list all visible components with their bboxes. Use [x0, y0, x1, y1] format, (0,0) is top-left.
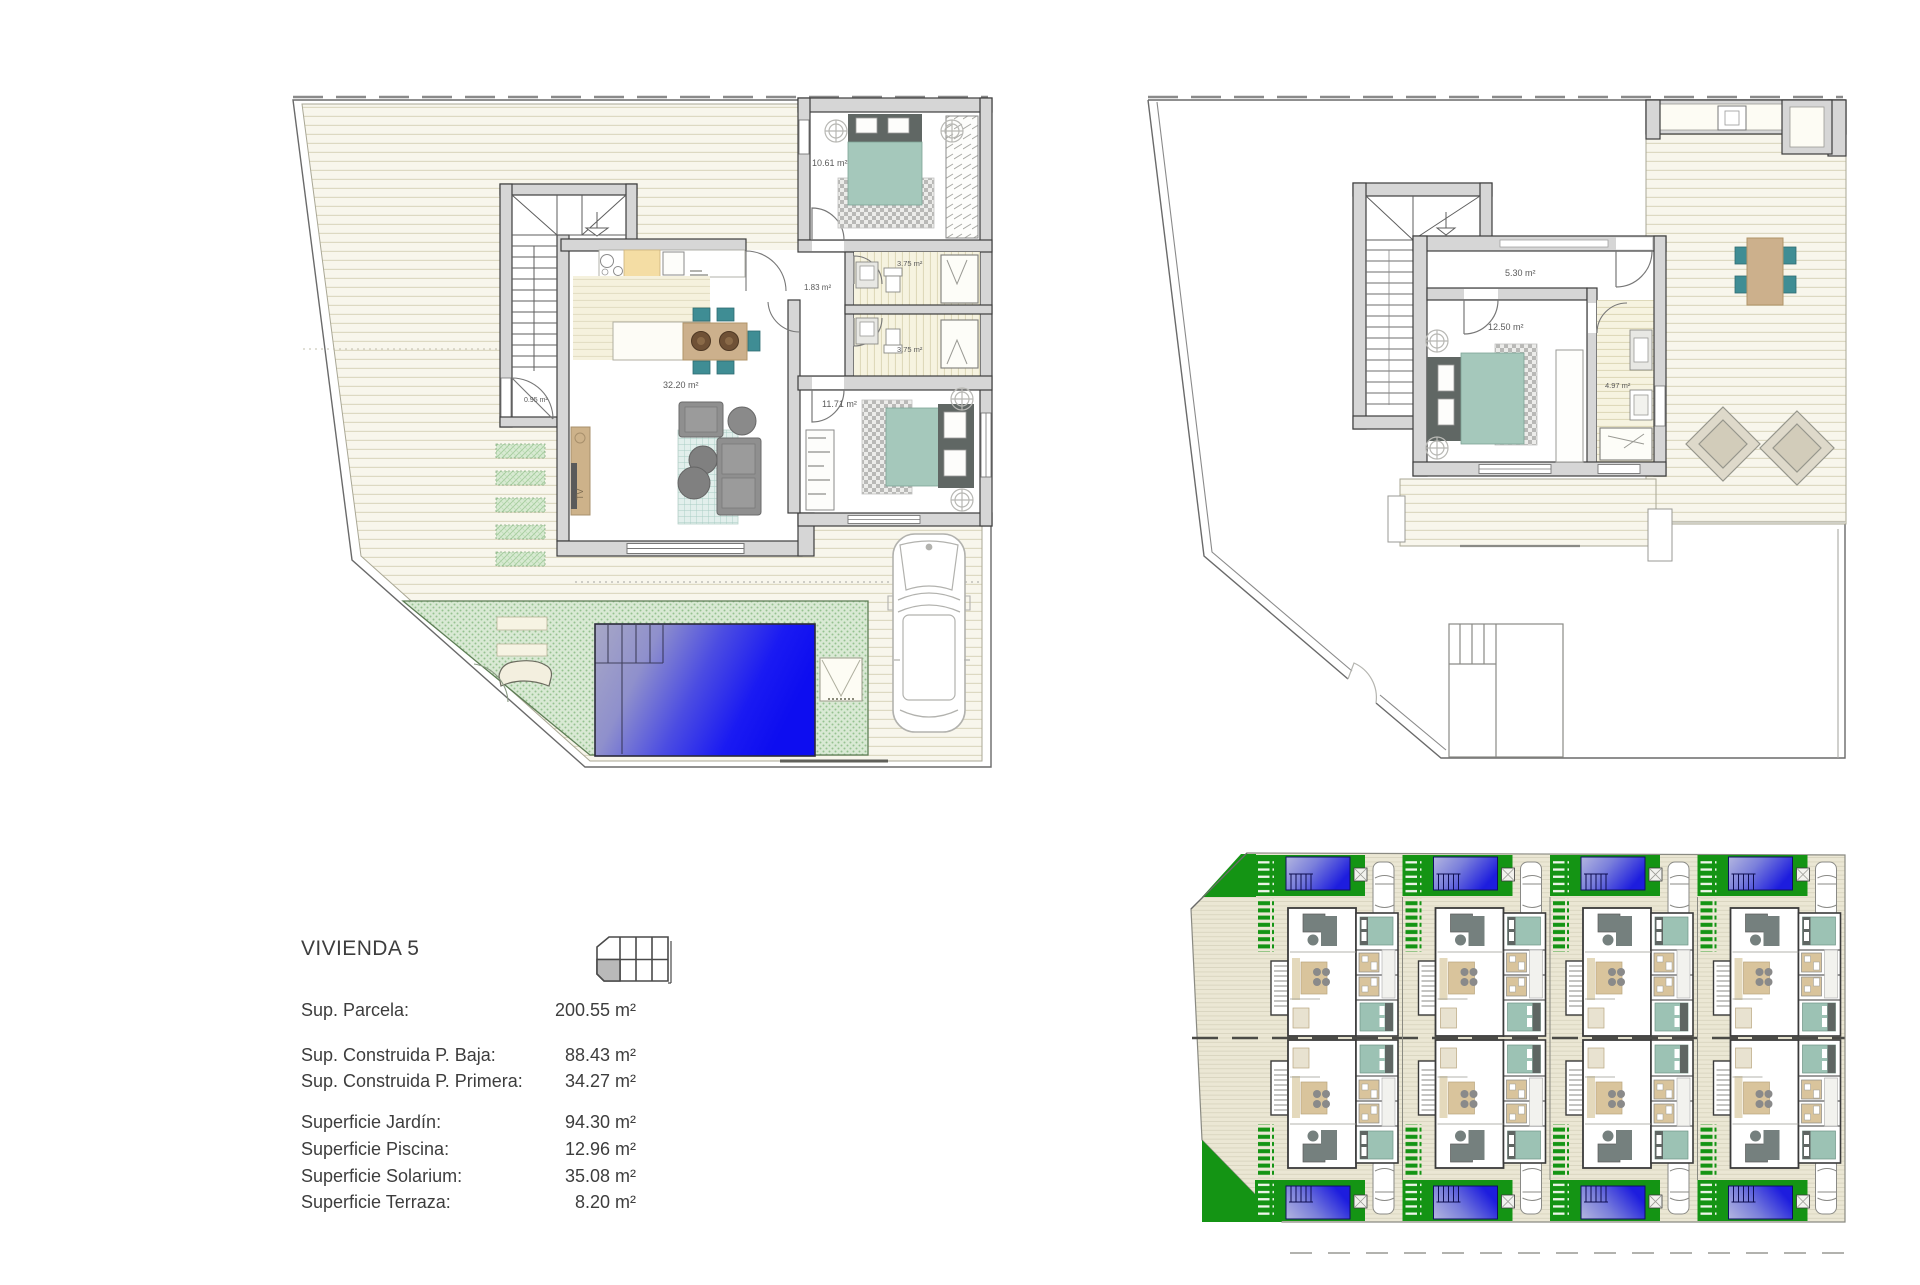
svg-text:Superficie Piscina:: Superficie Piscina: [301, 1139, 449, 1159]
svg-text:Superficie Solarium:: Superficie Solarium: [301, 1166, 462, 1186]
svg-text:32.20 m²: 32.20 m² [663, 380, 699, 390]
svg-text:200.55 m²: 200.55 m² [555, 1000, 636, 1020]
svg-text:12.96 m²: 12.96 m² [565, 1139, 636, 1159]
svg-text:Sup. Parcela:: Sup. Parcela: [301, 1000, 409, 1020]
svg-text:1.83 m²: 1.83 m² [804, 283, 831, 292]
svg-text:34.27 m²: 34.27 m² [565, 1071, 636, 1091]
svg-text:10.61 m²: 10.61 m² [812, 158, 848, 168]
svg-text:94.30 m²: 94.30 m² [565, 1112, 636, 1132]
svg-text:0.95 m²: 0.95 m² [524, 397, 548, 404]
svg-text:12.50 m²: 12.50 m² [1488, 322, 1524, 332]
svg-text:8.20 m²: 8.20 m² [575, 1192, 636, 1212]
svg-text:88.43 m²: 88.43 m² [565, 1045, 636, 1065]
svg-text:TV: TV [575, 488, 585, 500]
svg-text:5.30 m²: 5.30 m² [1505, 268, 1536, 278]
svg-text:35.08 m²: 35.08 m² [565, 1166, 636, 1186]
svg-text:Superficie Terraza:: Superficie Terraza: [301, 1192, 451, 1212]
svg-text:11.71 m²: 11.71 m² [822, 399, 857, 409]
svg-text:Sup. Construida P. Primera:: Sup. Construida P. Primera: [301, 1071, 523, 1091]
svg-text:Sup. Construida P. Baja:: Sup. Construida P. Baja: [301, 1045, 496, 1065]
svg-text:VIVIENDA 5: VIVIENDA 5 [301, 937, 419, 960]
svg-text:3.75 m²: 3.75 m² [897, 259, 923, 268]
svg-text:4.97 m²: 4.97 m² [1605, 381, 1631, 390]
svg-text:3.75 m²: 3.75 m² [897, 345, 923, 354]
svg-text:Superficie Jardín:: Superficie Jardín: [301, 1112, 441, 1132]
